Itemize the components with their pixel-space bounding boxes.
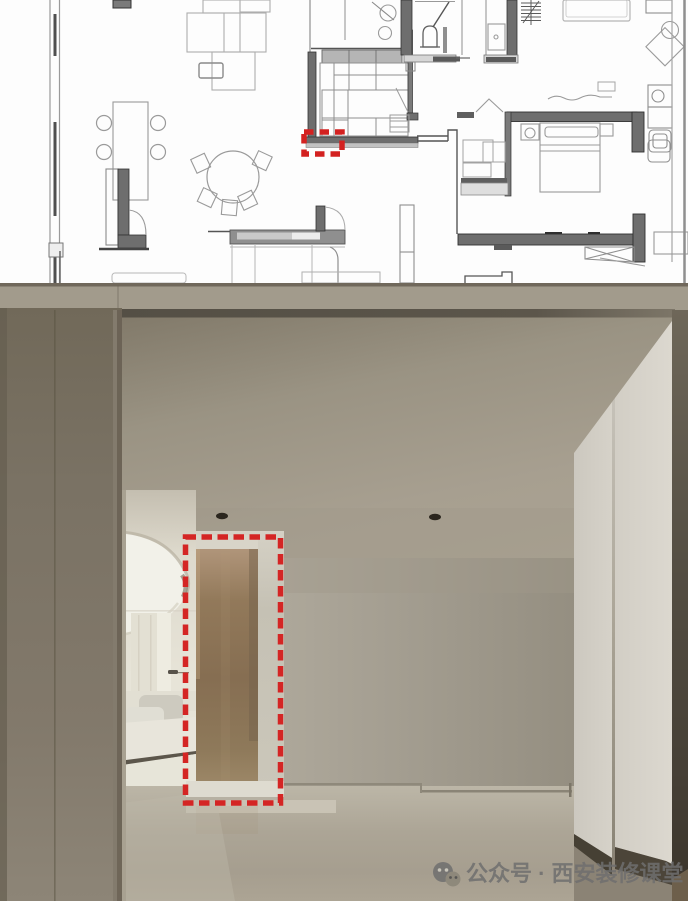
svg-text:公众号 · 西安装修课堂: 公众号 · 西安装修课堂 xyxy=(466,861,684,886)
